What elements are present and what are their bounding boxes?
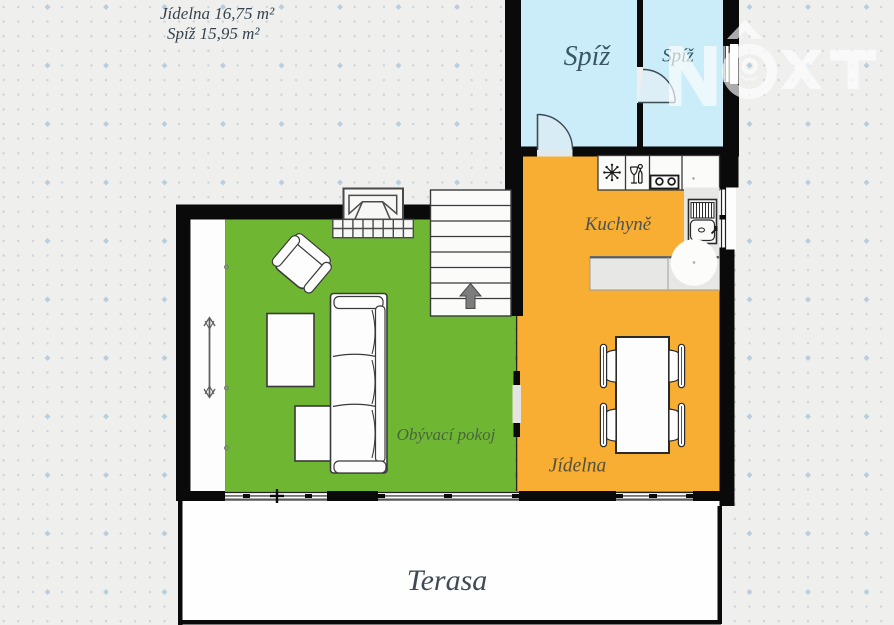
svg-text:Terasa: Terasa: [407, 564, 488, 597]
svg-text:Spíž 15,95 m²: Spíž 15,95 m²: [167, 24, 260, 43]
svg-text:Jídelna: Jídelna: [549, 456, 607, 477]
svg-text:Jídelna 16,75 m²: Jídelna 16,75 m²: [160, 4, 275, 23]
svg-text:Kuchyně: Kuchyně: [584, 214, 652, 235]
svg-text:Spíž: Spíž: [564, 41, 612, 72]
svg-text:Obývací pokoj: Obývací pokoj: [397, 425, 496, 444]
